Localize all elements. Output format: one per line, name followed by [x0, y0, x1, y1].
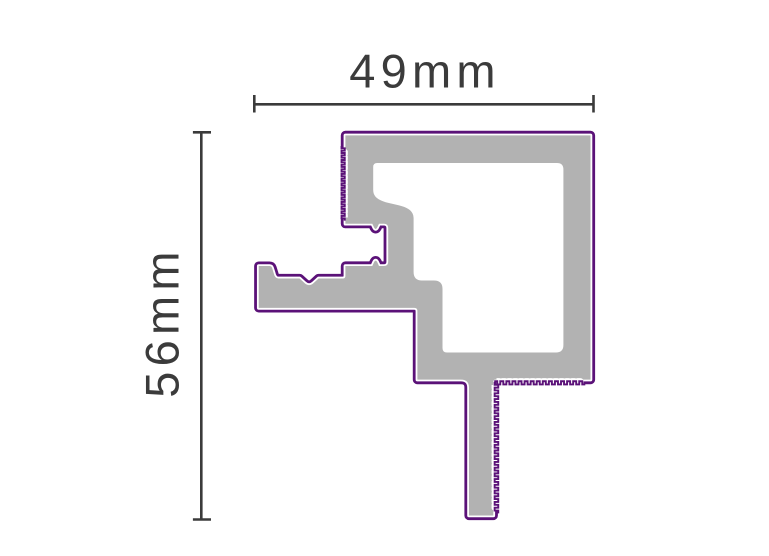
svg-text:49mm: 49mm [349, 45, 500, 98]
svg-text:56mm: 56mm [136, 246, 189, 397]
